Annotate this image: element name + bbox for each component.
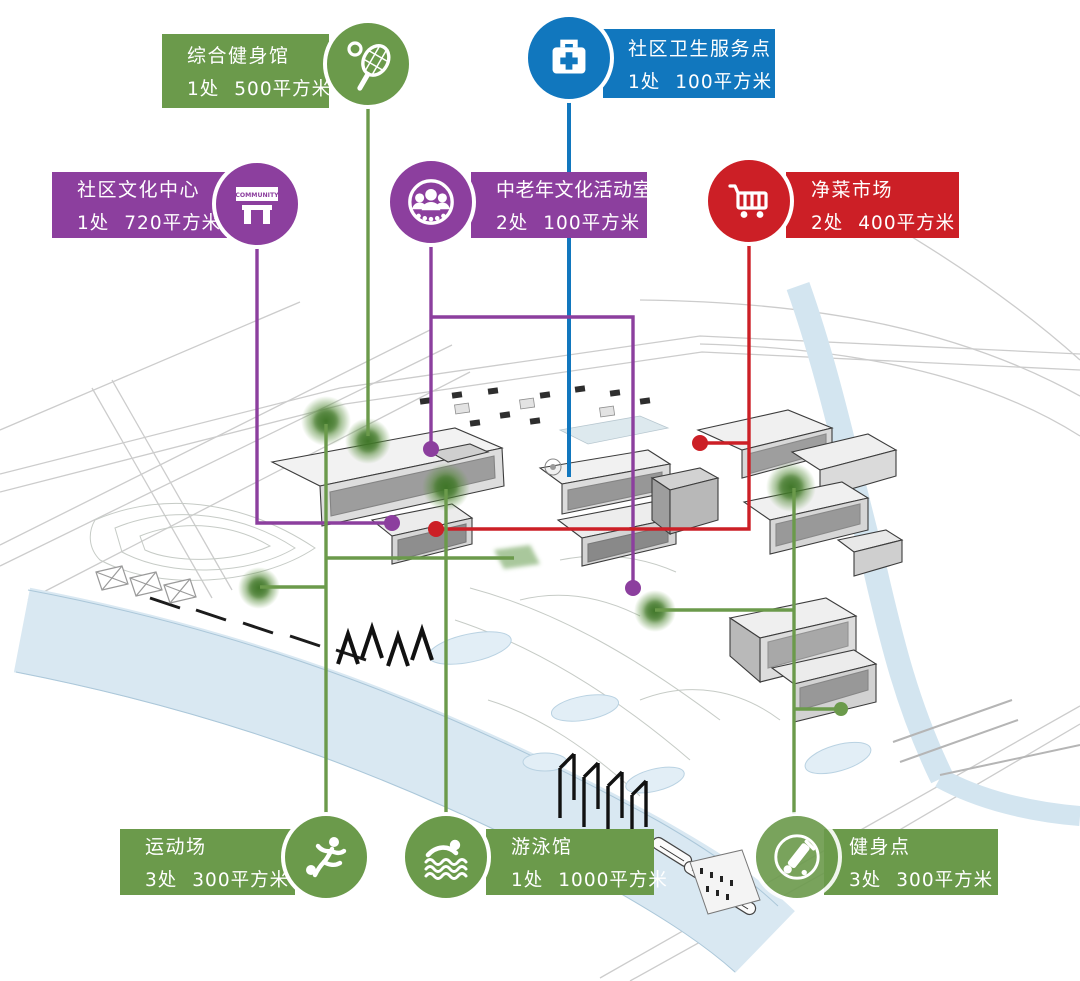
- callout-box-vegetable-market: 净菜市场 2处400平方米: [786, 172, 959, 238]
- facility-area: 400平方米: [858, 213, 955, 234]
- facility-count: 1处: [187, 79, 219, 100]
- callout-box-culture-center: 社区文化中心 1处720平方米: [52, 172, 227, 238]
- marker-blob-core-fitness-spot-0: [780, 476, 803, 499]
- facility-stats: 1处720平方米: [77, 209, 227, 235]
- callout-bubble-fitness-spot: [752, 812, 842, 902]
- marker-dot-vegetable-market-0: [692, 435, 708, 451]
- facility-area: 720平方米: [124, 213, 221, 234]
- facility-title: 综合健身馆: [187, 41, 329, 68]
- community-sign-text: COMMUNITY: [235, 192, 279, 199]
- swimmer-icon: [416, 827, 476, 887]
- callout-box-sports-field: 运动场 3处300平方米: [120, 829, 295, 895]
- infographic-stage: 综合健身馆 1处500平方米 社区卫生服务点 1处100平方米 社区文化中: [0, 0, 1080, 981]
- facility-stats: 3处300平方米: [849, 866, 998, 892]
- facility-stats: 1处500平方米: [187, 75, 329, 101]
- facility-stats: 2处100平方米: [496, 209, 647, 235]
- shopping-cart-icon: [719, 171, 779, 231]
- callout-box-fitness-gym: 综合健身馆 1处500平方米: [162, 34, 329, 108]
- facility-count: 1处: [77, 213, 109, 234]
- facility-title: 社区文化中心: [77, 175, 227, 202]
- marker-dot-senior-activity-room-0: [423, 441, 439, 457]
- callout-bubble-senior-activity-room: [386, 157, 476, 247]
- facility-area: 300平方米: [896, 870, 993, 891]
- facility-area: 300平方米: [192, 870, 289, 891]
- facility-stats: 1处100平方米: [628, 68, 775, 94]
- callout-box-senior-activity-room: 中老年文化活动室 2处100平方米: [471, 172, 647, 238]
- facility-title: 中老年文化活动室: [496, 175, 647, 202]
- facility-area: 500平方米: [234, 79, 331, 100]
- facility-stats: 3处300平方米: [145, 866, 295, 892]
- facility-area: 100平方米: [675, 72, 772, 93]
- connector-line-senior-activity-room-1: [431, 317, 633, 588]
- marker-dot-fitness-spot-2: [834, 702, 848, 716]
- callout-bubble-swimming-pool: [401, 812, 491, 902]
- exercise-bike-icon: [766, 826, 828, 888]
- marker-dot-vegetable-market-1: [428, 521, 444, 537]
- marker-dot-senior-activity-room-1: [625, 580, 641, 596]
- connector-line-vegetable-market-0: [436, 244, 749, 529]
- facility-area: 1000平方米: [558, 870, 668, 891]
- callout-bubble-vegetable-market: [704, 156, 794, 246]
- facility-title: 游泳馆: [511, 832, 654, 859]
- facility-stats: 1处1000平方米: [511, 866, 654, 892]
- soccer-player-icon: [296, 827, 356, 887]
- callout-bubble-fitness-gym: [323, 19, 413, 109]
- facility-count: 1处: [628, 72, 660, 93]
- facility-area: 100平方米: [543, 213, 640, 234]
- facility-count: 3处: [849, 870, 881, 891]
- facility-count: 2处: [496, 213, 528, 234]
- callout-box-health-station: 社区卫生服务点 1处100平方米: [603, 29, 775, 98]
- callout-bubble-health-station: [524, 13, 614, 103]
- people-group-icon: [400, 171, 462, 233]
- callout-box-swimming-pool: 游泳馆 1处1000平方米: [486, 829, 654, 895]
- tennis-racket-icon: [338, 34, 398, 94]
- callout-box-fitness-spot: 健身点 3处300平方米: [824, 829, 998, 895]
- callout-bubble-culture-center: COMMUNITY: [212, 159, 302, 249]
- facility-count: 2处: [811, 213, 843, 234]
- facility-title: 健身点: [849, 832, 998, 859]
- facility-title: 净菜市场: [811, 175, 959, 202]
- connector-line-culture-center-0: [257, 248, 390, 523]
- first-aid-kit-icon: [540, 29, 598, 87]
- facility-stats: 2处400平方米: [811, 209, 959, 235]
- community-sign-icon: COMMUNITY: [227, 174, 287, 234]
- marker-dot-culture-center-0: [384, 515, 400, 531]
- facility-title: 运动场: [145, 832, 295, 859]
- facility-count: 3处: [145, 870, 177, 891]
- facility-title: 社区卫生服务点: [628, 34, 775, 61]
- callout-bubble-sports-field: [281, 812, 371, 902]
- facility-count: 1处: [511, 870, 543, 891]
